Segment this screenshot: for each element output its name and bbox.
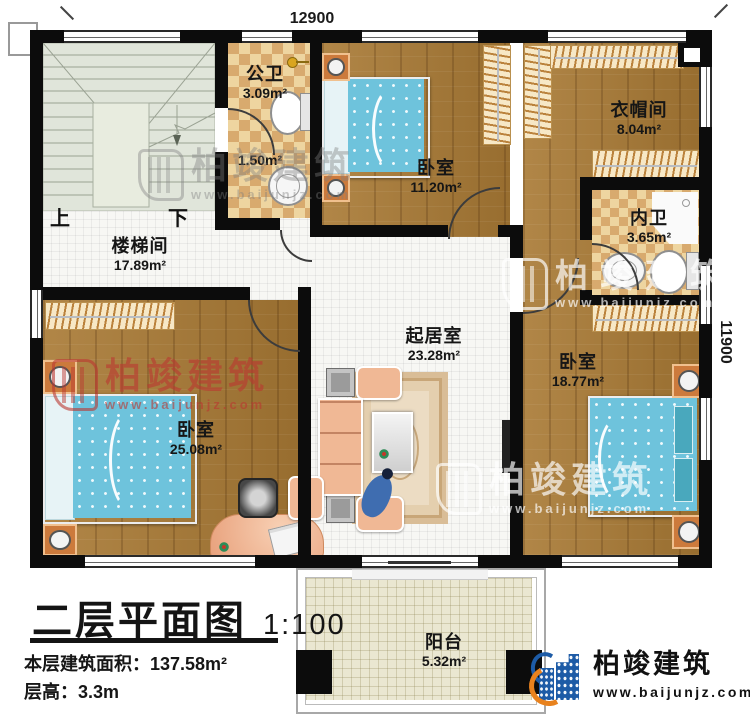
room-name: 卧室 [177,420,215,441]
nightstand [322,53,350,81]
wall [580,190,592,240]
side-table [326,494,355,523]
company-logo: 柏竣建筑 www.baijunjz.com [533,650,750,706]
wall [292,30,362,43]
nightstand [43,360,77,394]
armchair [356,366,402,400]
window [548,30,686,43]
wardrobe [45,302,175,330]
window [699,266,712,324]
room-area: 1.50m² [238,152,282,168]
room-name: 楼梯间 [112,236,169,257]
floor-plan-page: 楼梯间 17.89m² 公卫 3.09m² 1.50m² 卧室 11.20m² … [0,0,750,721]
window [85,555,255,568]
wardrobe [550,45,684,69]
stairs-up-label: 上 [50,202,70,231]
wall [478,555,523,568]
wall [699,324,712,398]
staircase-drawing [43,43,215,211]
coffee-table [372,412,413,473]
wall [310,225,448,237]
room-label-ensuite-bath: 内卫 3.65m² [600,208,698,245]
bed-fold [598,416,640,502]
room-area: 3.65m² [627,229,671,245]
wall [310,30,322,225]
bed-pillow [45,396,75,520]
wall [580,177,699,190]
tick-mark [714,4,728,18]
toilet-tank [686,252,699,290]
slider-leaf [388,561,452,564]
room-area: 3.09m² [243,85,287,101]
side-table [326,368,355,397]
wardrobe [524,45,552,139]
room-name: 卧室 [559,352,597,373]
room-label-cloakroom: 衣帽间 8.04m² [586,100,692,137]
room-area: 25.08m² [170,441,222,457]
nightstand [43,524,77,556]
wall [30,338,43,568]
window [562,555,678,568]
room-label-stairwell: 楼梯间 17.89m² [75,236,205,273]
tick-mark [60,6,74,20]
room-name: 卧室 [417,158,455,179]
window [64,30,180,43]
wall [498,225,523,237]
wall [678,555,712,568]
balcony-slider-door [362,555,478,568]
balcony-step [352,569,488,580]
plan-scale: 1:100 [263,609,346,641]
bed-pillow [324,79,350,174]
room-label-bedroom-top: 卧室 11.20m² [390,158,482,195]
room-label-living-room: 起居室 23.28m² [384,326,484,363]
room-label-bedroom-right: 卧室 18.77m² [528,352,628,389]
wall [523,555,562,568]
wall [699,127,712,266]
washbasin [268,166,308,206]
company-logo-icon [533,650,585,706]
wardrobe [592,305,701,332]
window [362,30,478,43]
nightstand [322,174,350,202]
room-name: 公卫 [246,64,284,85]
room-area: 11.20m² [410,179,461,195]
wall [30,30,43,290]
plan-title-text: 二层平面图 [32,599,247,643]
room-area: 8.04m² [617,121,661,137]
room-label-bedroom-left: 卧室 25.08m² [146,420,246,457]
room-label-balcony: 阳台 5.32m² [394,632,494,669]
room-area: 23.28m² [408,347,460,363]
window [699,62,712,127]
room-name: 衣帽间 [611,100,668,121]
stairs-down-label: 下 [168,202,188,231]
room-area: 17.89m² [114,257,166,273]
window [242,30,292,43]
bed-fold [109,410,151,510]
dimension-right: 11900 [716,306,734,378]
balcony-column-left [296,650,332,694]
wardrobe [483,45,511,145]
company-logo-url: www.baijunjz.com [593,684,750,700]
wall [478,30,548,43]
wall [215,218,280,230]
room-area: 18.77m² [552,373,604,389]
floor-area-value: 137.58m² [150,654,227,674]
company-logo-brand: 柏竣建筑 [593,650,750,680]
floor-height-line: 层高：3.3m [24,678,119,704]
window [699,398,712,460]
flower-icon [378,448,390,460]
wardrobe [592,150,701,179]
bed-right [588,396,703,517]
wall [30,555,85,568]
floor-area-line: 本层建筑面积：137.58m² [24,650,227,676]
sofa [318,398,363,496]
duct-shaft [678,43,712,67]
room-name: 起居室 [406,326,463,347]
room-name: 阳台 [425,632,463,653]
wall [30,287,250,300]
window [30,290,43,338]
room-label-wash-area: 1.50m² [220,152,300,168]
title-underline [30,638,278,643]
toilet [650,250,688,294]
wall [580,295,699,305]
dimension-top: 12900 [262,10,362,28]
room-area: 5.32m² [422,653,466,669]
wall [510,237,523,258]
floor-height-label: 层高： [24,682,78,702]
floor-area-label: 本层建筑面积： [24,654,150,674]
wall [510,312,523,555]
bed-runner [674,406,693,454]
wall [699,460,712,568]
bed-runner [674,458,693,502]
light-stem [296,61,309,63]
room-label-public-bath: 公卫 3.09m² [222,64,308,101]
floor-height-value: 3.3m [78,682,119,702]
wall [180,30,242,43]
desk-chair [238,478,278,518]
bed-left [43,394,197,524]
room-name: 内卫 [630,208,668,229]
flower-icon [218,541,230,553]
